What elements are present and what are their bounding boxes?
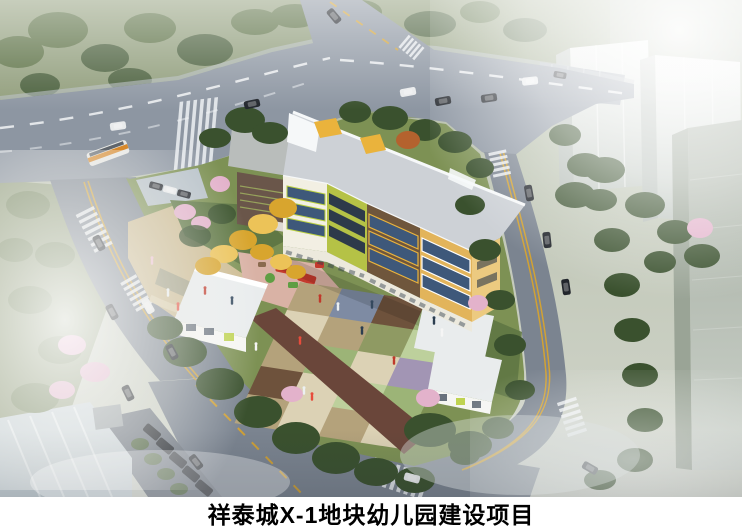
project-rendering-figure: 祥泰城X-1地块幼儿园建设项目 [0, 0, 742, 529]
caption-bar: 祥泰城X-1地块幼儿园建设项目 [0, 497, 742, 529]
haze-left [0, 150, 260, 490]
caption-text: 祥泰城X-1地块幼儿园建设项目 [208, 496, 535, 530]
haze-top [0, 0, 742, 110]
aerial-rendering-svg [0, 0, 742, 497]
aerial-rendering [0, 0, 742, 497]
